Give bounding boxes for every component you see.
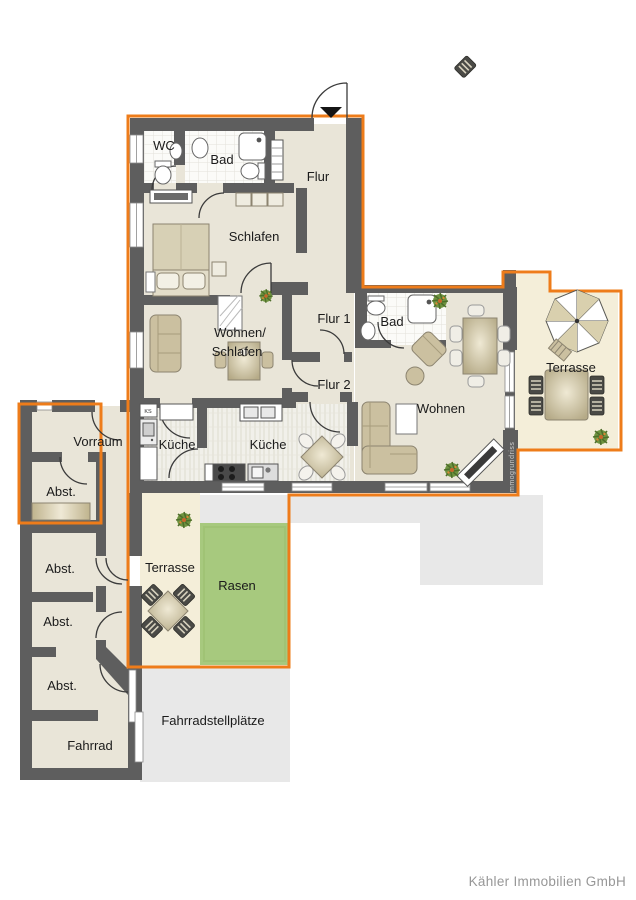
paving-walkway	[198, 495, 543, 523]
label-vorraum: Vorraum	[73, 434, 122, 449]
lawn-area	[200, 523, 289, 665]
wardrobe	[236, 193, 283, 206]
label-schlafen: Schlafen	[229, 229, 280, 244]
label-terrasse-right: Terrasse	[546, 360, 596, 375]
label-ks: KS	[144, 409, 152, 415]
label-abst3: Abst.	[43, 614, 73, 629]
label-wohnen-schlafen-1: Wohnen/	[214, 325, 266, 340]
label-kueche-left: Küche	[159, 437, 196, 452]
label-wohnen-schlafen-2: Schlafen	[212, 344, 263, 359]
paving-court	[420, 523, 543, 585]
label-rasen: Rasen	[218, 578, 256, 593]
label-bad-top: Bad	[210, 152, 233, 167]
floorplan-svg: WC Bad Flur Schlafen Wohnen/ Schlafen Fl…	[0, 0, 636, 900]
label-fahrrad: Fahrrad	[67, 738, 113, 753]
label-flur2: Flur 2	[317, 377, 350, 392]
label-flur: Flur	[307, 169, 330, 184]
outdoor-areas	[140, 495, 543, 782]
label-abst2: Abst.	[45, 561, 75, 576]
watermark-text: mmogrundriss	[509, 442, 516, 492]
radiator	[146, 272, 155, 292]
label-kueche-right: Küche	[250, 437, 287, 452]
label-abst4: Abst.	[47, 678, 77, 693]
dresser	[150, 190, 192, 203]
label-terrasse-bottom: Terrasse	[145, 560, 195, 575]
label-fahrradstellplaetze: Fahrradstellplätze	[161, 713, 264, 728]
hall-shelf	[271, 140, 283, 180]
storage-shelf	[32, 503, 90, 520]
company-credit: Kähler Immobilien GmbH	[469, 874, 626, 889]
floor-terrace-bottom	[140, 493, 200, 666]
floor-plan-page: WC Bad Flur Schlafen Wohnen/ Schlafen Fl…	[0, 0, 636, 900]
door-leaf	[135, 712, 143, 762]
label-abst1: Abst.	[46, 484, 76, 499]
label-wc: WC	[153, 138, 175, 153]
label-flur1: Flur 1	[317, 311, 350, 326]
label-bad-right: Bad	[380, 314, 403, 329]
label-wohnen: Wohnen	[417, 401, 465, 416]
kitchen-dining-set	[296, 431, 348, 483]
